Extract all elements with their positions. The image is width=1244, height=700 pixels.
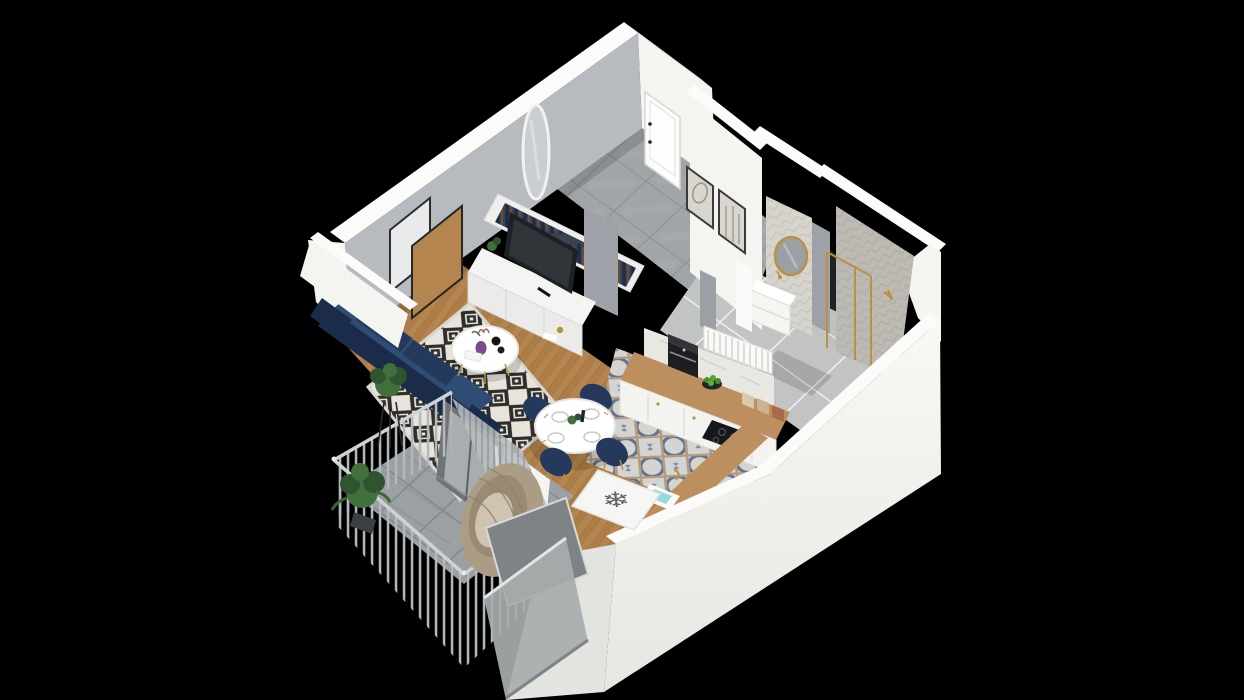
coffee-table xyxy=(452,326,521,384)
plate xyxy=(583,409,599,419)
freezer-snowflake-icon: ❄ xyxy=(600,487,631,513)
door-handle xyxy=(648,122,652,126)
plate xyxy=(552,412,568,422)
decor-cup xyxy=(498,347,505,354)
decor-sphere xyxy=(492,337,501,346)
floor-plan-render: ❄ xyxy=(0,0,1244,700)
apartment-isometric-svg: ❄ xyxy=(0,0,1244,700)
plate xyxy=(548,433,564,443)
bathroom-round-mirror xyxy=(775,237,807,275)
candle xyxy=(557,327,563,333)
plate xyxy=(584,432,600,442)
oval-mirror xyxy=(523,105,549,199)
